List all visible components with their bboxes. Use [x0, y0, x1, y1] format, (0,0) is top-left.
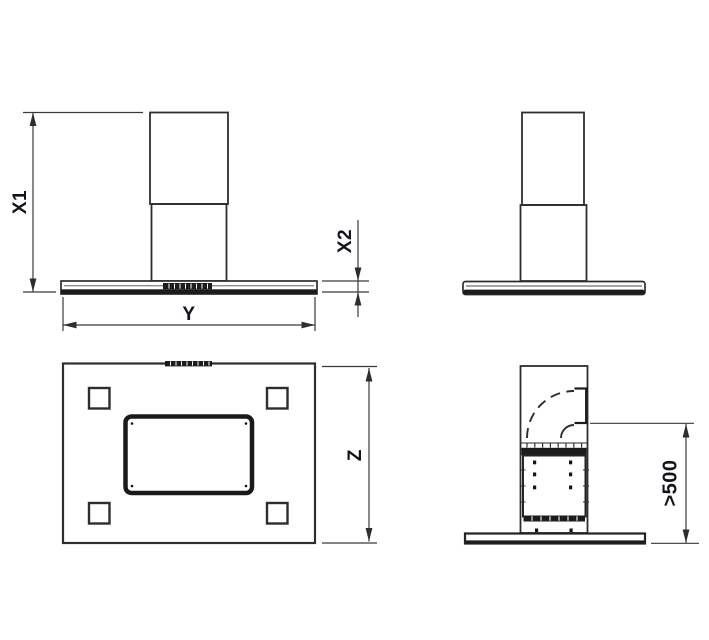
- plan-filter-opening: [126, 417, 253, 494]
- install-bracket-top-band: [522, 448, 587, 456]
- front-chimney-connector-strip: [163, 283, 212, 289]
- installation-view: >500: [465, 366, 699, 544]
- front-chimney-lower-section: [152, 204, 227, 281]
- x2-arrow-up: [355, 292, 362, 306]
- install-canopy-bottom-band: [466, 540, 644, 543]
- x2-arrow-down: [355, 268, 362, 282]
- front-view: X1 X2 Y: [10, 113, 369, 332]
- install-bracket-bottom-band: [524, 516, 586, 522]
- x1-label: X1: [10, 190, 31, 214]
- x2-label: X2: [335, 229, 356, 253]
- min-clearance-arrow-up: [683, 424, 690, 438]
- dimension-x1: [23, 113, 143, 293]
- front-canopy-bottom-band: [61, 289, 317, 294]
- x1-arrow-down: [30, 279, 37, 293]
- min-clearance-label: >500: [659, 459, 681, 506]
- dimension-min-clearance: [590, 423, 699, 543]
- y-label: Y: [182, 304, 195, 325]
- z-arrow-down: [366, 528, 373, 542]
- install-inner-bracket-box: [523, 456, 586, 517]
- front-chimney-upper-section: [150, 113, 228, 205]
- side-canopy-bottom-band: [464, 290, 645, 295]
- side-chimney-upper-section: [522, 113, 584, 206]
- technical-drawing-canvas: X1 X2 Y: [0, 0, 709, 640]
- z-label: Z: [345, 449, 366, 461]
- side-view: [463, 113, 645, 295]
- x1-arrow-up: [30, 113, 37, 127]
- z-arrow-up: [366, 368, 373, 382]
- side-chimney-lower-section: [521, 205, 587, 281]
- y-arrow-right: [302, 322, 316, 329]
- plan-chimney-hatch-strip: [165, 361, 212, 366]
- min-clearance-arrow-down: [683, 530, 690, 544]
- plan-view: Z: [63, 361, 377, 543]
- y-arrow-left: [63, 322, 77, 329]
- cooker-hood-dimension-diagram: X1 X2 Y: [0, 0, 709, 640]
